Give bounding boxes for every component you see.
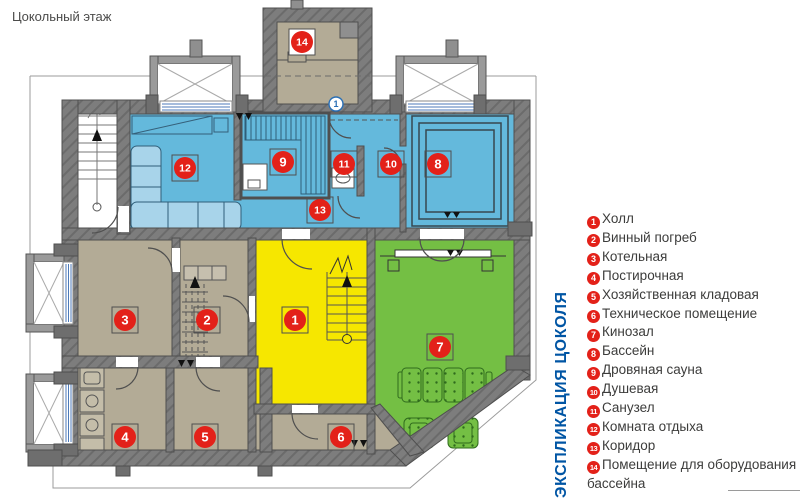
legend-label: Техническое помещение bbox=[602, 306, 757, 321]
light-well-left-1 bbox=[26, 254, 73, 332]
room-badge-number: 13 bbox=[314, 205, 326, 217]
legend-item-11: 11Санузел bbox=[587, 399, 800, 418]
legend-list: 1Холл2Винный погреб3Котельная4Постирочна… bbox=[587, 210, 800, 494]
legend-label: Душевая bbox=[602, 381, 658, 396]
legend-vertical-title: ЭКСПЛИКАЦИЯ ЦОКОЛЯ bbox=[553, 286, 571, 498]
room-badge-number: 7 bbox=[436, 340, 443, 355]
room-badge-number: 12 bbox=[179, 163, 191, 175]
legend-label: Хозяйственная кладовая bbox=[602, 287, 759, 302]
legend-item-7: 7Кинозал bbox=[587, 323, 800, 342]
legend-item-13: 13Коридор bbox=[587, 437, 800, 456]
legend-bullet: 14 bbox=[587, 461, 600, 474]
legend-label: Холл bbox=[602, 211, 634, 226]
room-3-boiler-area bbox=[70, 232, 262, 368]
legend-bullet: 13 bbox=[587, 442, 600, 455]
light-well-left-2 bbox=[26, 374, 73, 452]
room-badge-number: 8 bbox=[434, 157, 441, 172]
legend-item-10: 10Душевая bbox=[587, 380, 800, 399]
legend-label: Винный погреб bbox=[602, 230, 697, 245]
legend-bullet: 5 bbox=[587, 291, 600, 304]
legend-bullet: 6 bbox=[587, 310, 600, 323]
corner-divider-line bbox=[728, 490, 800, 491]
legend-item-8: 8Бассейн bbox=[587, 342, 800, 361]
light-well-top-left bbox=[150, 40, 240, 112]
legend-bullet: 7 bbox=[587, 329, 600, 342]
legend-bullet: 11 bbox=[587, 405, 600, 418]
legend-label: Кинозал bbox=[602, 324, 654, 339]
legend-label: Комната отдыха bbox=[602, 419, 703, 434]
legend-label: Бассейн bbox=[602, 343, 654, 358]
legend-bullet: 1 bbox=[587, 216, 600, 229]
room-badge-number: 10 bbox=[385, 159, 397, 171]
legend-item-5: 5Хозяйственная кладовая bbox=[587, 286, 800, 305]
legend-label: Постирочная bbox=[602, 268, 684, 283]
room-badge-number: 2 bbox=[203, 313, 210, 328]
page: Цокольный этаж bbox=[0, 0, 800, 498]
room-badge-number: 1 bbox=[291, 313, 298, 328]
light-well-top-right bbox=[396, 40, 486, 112]
legend-bullet: 9 bbox=[587, 367, 600, 380]
legend-item-1: 1Холл bbox=[587, 210, 800, 229]
legend-bullet: 2 bbox=[587, 234, 600, 247]
room-badge-number: 14 bbox=[296, 37, 308, 49]
room-badge-14: 14 bbox=[289, 29, 315, 55]
legend-item-2: 2Винный погреб bbox=[587, 229, 800, 248]
legend-label: Котельная bbox=[602, 249, 667, 264]
legend-label: Коридор bbox=[602, 438, 655, 453]
room-badge-number: 5 bbox=[201, 430, 208, 445]
legend-item-4: 4Постирочная bbox=[587, 267, 800, 286]
legend-item-12: 12Комната отдыха bbox=[587, 418, 800, 437]
legend-item-14: 14Помещение для оборудования бассейна bbox=[587, 456, 800, 494]
room-badge-number: 3 bbox=[121, 313, 128, 328]
legend-bullet: 3 bbox=[587, 253, 600, 266]
room-badge-number: 4 bbox=[121, 430, 129, 445]
legend-bullet: 10 bbox=[587, 386, 600, 399]
legend-bullet: 8 bbox=[587, 348, 600, 361]
legend-item-6: 6Техническое помещение bbox=[587, 305, 800, 324]
legend-label: Дровяная сауна bbox=[602, 362, 702, 377]
room-badge-number: 6 bbox=[337, 430, 344, 445]
legend: 1Холл2Винный погреб3Котельная4Постирочна… bbox=[587, 210, 800, 494]
legend-label: Помещение для оборудования бассейна bbox=[587, 457, 796, 491]
legend-bullet: 4 bbox=[587, 272, 600, 285]
room-badge-number: 9 bbox=[279, 155, 286, 170]
legend-item-3: 3Котельная bbox=[587, 248, 800, 267]
legend-item-9: 9Дровяная сауна bbox=[587, 361, 800, 380]
room-badge-number: 11 bbox=[338, 159, 349, 171]
legend-label: Санузел bbox=[602, 400, 655, 415]
section-marker: 1 bbox=[329, 97, 343, 111]
floor-plan: 1 1234567891011121314 bbox=[0, 0, 560, 498]
section-marker-number: 1 bbox=[333, 99, 338, 109]
legend-bullet: 12 bbox=[587, 423, 600, 436]
